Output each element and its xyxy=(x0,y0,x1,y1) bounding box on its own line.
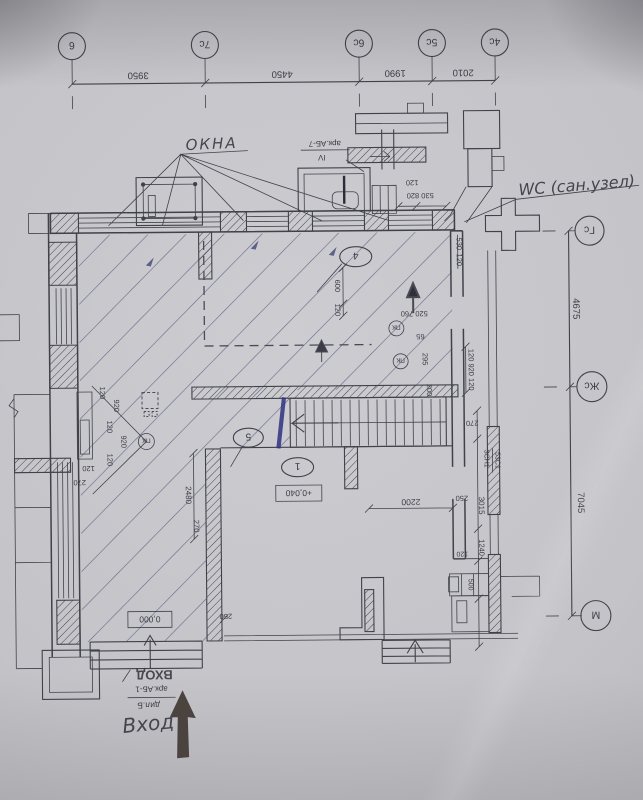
hatch-polygon xyxy=(79,232,456,642)
entrance-secondary xyxy=(382,640,450,664)
bay-dot-3 xyxy=(142,217,145,220)
wc-box-lower xyxy=(468,149,492,187)
dim-chain-right: 120 920 120 xyxy=(467,349,476,391)
bay-dot-4 xyxy=(194,216,197,219)
dim-1990: 1990 xyxy=(385,67,406,78)
bottom-column xyxy=(449,577,459,592)
dim-295: 295 xyxy=(421,353,430,366)
entrance-steps xyxy=(90,641,202,669)
left-wall-glazing xyxy=(56,288,74,598)
dim-lc5: 120 xyxy=(105,454,114,467)
grid-bubble-gs-label: Гс xyxy=(584,224,595,236)
top-wall-pier-2 xyxy=(220,212,246,232)
bottom-right-stub xyxy=(501,576,540,596)
dim-7045: 7045 xyxy=(575,492,586,513)
wall-label-53s1: 53С1 xyxy=(493,452,500,469)
hall-pier xyxy=(344,447,357,489)
dim-4450: 4450 xyxy=(272,68,293,79)
note-entrance: Вход xyxy=(121,709,175,738)
grid-bubble-4s-label: 4с xyxy=(489,35,500,47)
dim-rr1240: 1240 xyxy=(477,539,486,556)
leased-area-hatch xyxy=(79,232,456,642)
grid-bubble-zhs-label: Жс xyxy=(584,380,599,392)
dim-lc1: 120 xyxy=(98,387,107,400)
wall-label-zsn1: ЗСН1 xyxy=(482,449,489,467)
dim-rr120: 120 xyxy=(456,550,468,557)
grid-right-dim-line xyxy=(569,231,572,616)
dim-porch-530-820: 530 820 xyxy=(407,191,434,200)
dim-120-porch: 120 xyxy=(333,304,342,317)
note-okna-leaders xyxy=(108,149,389,225)
floor-plan-drawing: 6 7с 6с 5с 4с 3950 4450 1990 2010 Гс Жс … xyxy=(0,0,643,800)
left-wall-pier-2 xyxy=(50,345,78,388)
note-okna: ОКНА xyxy=(185,134,238,154)
stairs xyxy=(278,396,446,448)
bay-dot-2 xyxy=(193,182,196,185)
top-wall-pier-1 xyxy=(50,213,78,233)
dim-wc-120: 120 xyxy=(455,253,464,266)
porch-comb-fixture xyxy=(372,185,396,213)
grid-axis-top: 6 7с 6с 5с 4с 3950 4450 1990 2010 xyxy=(58,29,509,109)
wc-notch xyxy=(492,156,504,170)
left-wall-pier-1 xyxy=(49,242,77,285)
left-wall-pier-3 xyxy=(57,600,80,644)
right-wall-pier-1 xyxy=(487,426,500,514)
dim-porch-120: 120 xyxy=(406,178,419,187)
entrance2-up-arrow xyxy=(407,640,423,662)
grid-right-dashes xyxy=(543,231,559,616)
dim-bl270: 270 xyxy=(73,478,86,487)
right-wall-pier-2 xyxy=(488,554,501,632)
grid-bubble-6-label: 6 xyxy=(69,39,75,51)
dim-2480: 2480 xyxy=(184,486,193,504)
grid-bubble-6s-label: 6с xyxy=(353,37,364,49)
circled-pk3-label: ПК xyxy=(142,436,151,443)
note-entrance-blue: ВХОД xyxy=(135,667,172,682)
grid-axis-right: Гс Жс М 4675 7045 xyxy=(542,216,611,631)
label-ark-ab7: арк.АБ-7 xyxy=(308,139,341,148)
dim-bl120: 120 xyxy=(82,464,95,473)
dim-3950: 3950 xyxy=(128,69,149,80)
circled-pk2-label: ПК xyxy=(396,356,405,363)
dim-2200: 2200 xyxy=(401,497,420,507)
dim-lc2: 920 xyxy=(112,399,121,412)
dim-m270: 270 xyxy=(192,520,201,533)
entrance2-steps xyxy=(382,640,450,664)
dim-line-porch xyxy=(394,202,450,210)
dim-lc3: 120 xyxy=(105,421,114,434)
top-annex xyxy=(135,102,504,225)
label-roman-iv: IV xyxy=(317,153,325,162)
grid-bubble-m-label: М xyxy=(591,609,600,621)
tag-5-label: 5 xyxy=(245,431,251,442)
tag-5-leader xyxy=(230,447,242,467)
break-line-zigzag xyxy=(9,399,18,418)
dim-65: 65 xyxy=(416,332,424,341)
cross-wall xyxy=(485,198,539,250)
annex-notch xyxy=(407,103,423,113)
grid-bubble-7s-label: 7с xyxy=(199,38,210,50)
bay-dot-1 xyxy=(141,183,144,186)
label-ark-ab1: арк.АБ-1 xyxy=(135,684,168,693)
dim-line-right-chain xyxy=(473,407,483,651)
dim-rr500: 500 xyxy=(467,579,474,591)
dim-rr3015: 3015 xyxy=(477,497,486,515)
bay-window-inner xyxy=(143,184,195,218)
level-plus40: +0,040 xyxy=(285,488,312,498)
dim-2010: 2010 xyxy=(453,67,474,78)
bottom-right-fixture xyxy=(457,601,467,623)
dim-520-760: 520 760 xyxy=(401,309,428,318)
grid-top-dashes xyxy=(72,92,495,109)
annex-hatched-band xyxy=(348,147,426,163)
level-zero: 0,000 xyxy=(139,614,161,624)
dim-rr270: 270 xyxy=(466,419,479,428)
circled-pk1-label: ПК xyxy=(392,323,401,330)
entrance-leader xyxy=(122,670,130,682)
left-annex-stub xyxy=(0,315,19,341)
top-wall-pier-3 xyxy=(288,211,312,231)
dim-wc-530: 530 xyxy=(455,237,464,250)
bay-door-leaf xyxy=(148,195,155,216)
bottom-l-wall-pier xyxy=(365,590,374,632)
tag-1-label: 1 xyxy=(294,460,300,471)
dim-200: 200 xyxy=(425,384,434,397)
left-annex-hatched-wall xyxy=(15,458,71,472)
dim-4675: 4675 xyxy=(570,298,581,319)
dim-rr250: 250 xyxy=(456,494,469,503)
dim-600: 600 xyxy=(333,280,342,293)
top-wall-left-stub xyxy=(28,213,50,233)
note-wc: WC (сан.узел) xyxy=(518,171,636,199)
tag-4-label: 4 xyxy=(352,250,358,261)
label-dil-b: дил.Б xyxy=(137,700,160,710)
bottom-l-wall xyxy=(340,577,385,639)
bottom-left-window-box-inner xyxy=(49,657,92,692)
dim-lc4: 920 xyxy=(119,435,128,448)
interior-pier-top xyxy=(199,232,212,279)
grid-bubble-5s-label: 5с xyxy=(426,36,437,48)
wc-box-upper xyxy=(463,110,499,148)
photo-of-floor-plan: 6 7с 6с 5с 4с 3950 4450 1990 2010 Гс Жс … xyxy=(0,0,643,800)
annex-top-bar-line xyxy=(356,123,448,124)
stairs-direction-arrow xyxy=(292,414,338,432)
